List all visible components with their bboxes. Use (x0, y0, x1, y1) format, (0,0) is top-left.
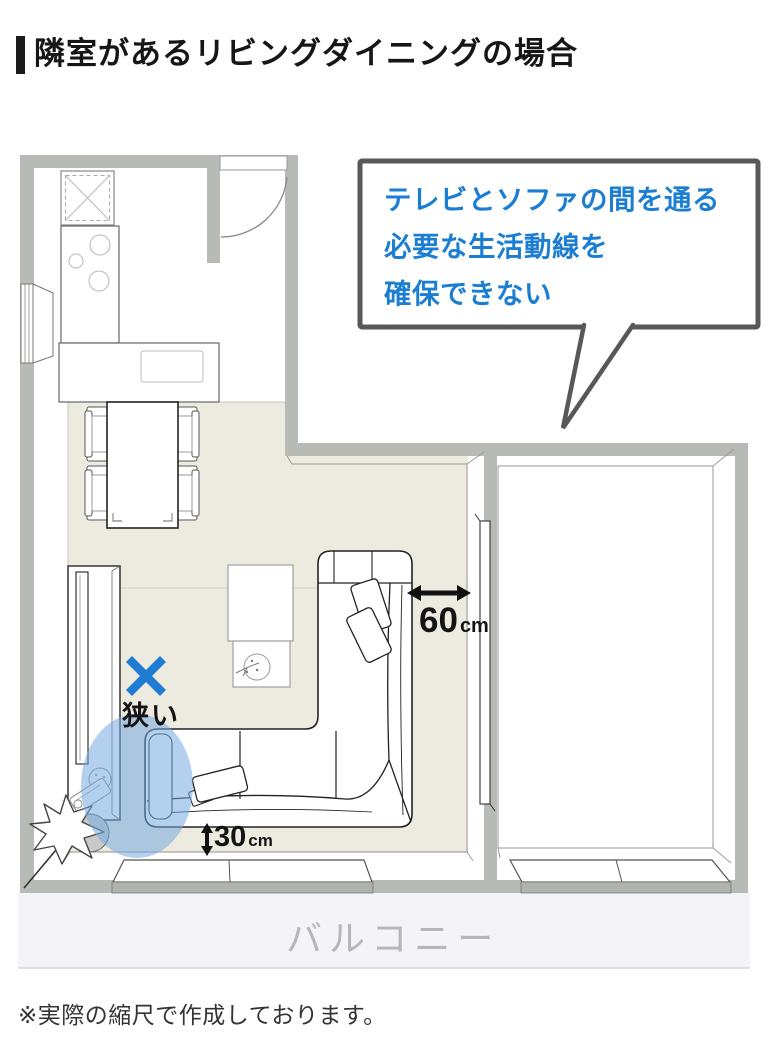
footnote: ※実際の縮尺で作成しております。 (18, 996, 387, 1030)
dining-chair (176, 407, 199, 461)
tv (76, 572, 88, 764)
sink (141, 351, 203, 382)
refrigerator (61, 171, 114, 225)
dining-chair (176, 466, 199, 520)
dining-chair (85, 407, 108, 461)
gap-label-30cm: 30 cm (214, 821, 273, 854)
page: 隣室があるリビングダイニングの場合 (0, 0, 768, 1050)
callout-line: 必要な生活動線を (384, 223, 744, 270)
balcony-sill-right (510, 860, 731, 893)
dining-chair (85, 466, 108, 520)
balcony-sill-left (112, 860, 373, 893)
callout-text: テレビとソファの間を通る 必要な生活動線を 確保できない (384, 176, 744, 317)
callout-line: 確保できない (384, 270, 744, 317)
gap-value: 30 (214, 821, 246, 854)
side-door (21, 284, 53, 363)
gap-unit: cm (248, 831, 273, 851)
entry-door (220, 156, 287, 237)
callout-line: テレビとソファの間を通る (384, 176, 744, 223)
dining-table (107, 402, 178, 528)
gap-label-60cm: 60 cm (419, 601, 489, 641)
stove (61, 226, 119, 343)
gap-unit: cm (460, 615, 489, 638)
kitchen-counter (59, 343, 219, 402)
coffee-table (228, 565, 293, 687)
floor-plan (0, 0, 768, 1050)
balcony-label: バルコニー (286, 910, 500, 962)
narrow-label: 狭い (122, 694, 180, 733)
gap-value: 60 (419, 601, 458, 641)
highlight-ellipse (81, 714, 193, 858)
